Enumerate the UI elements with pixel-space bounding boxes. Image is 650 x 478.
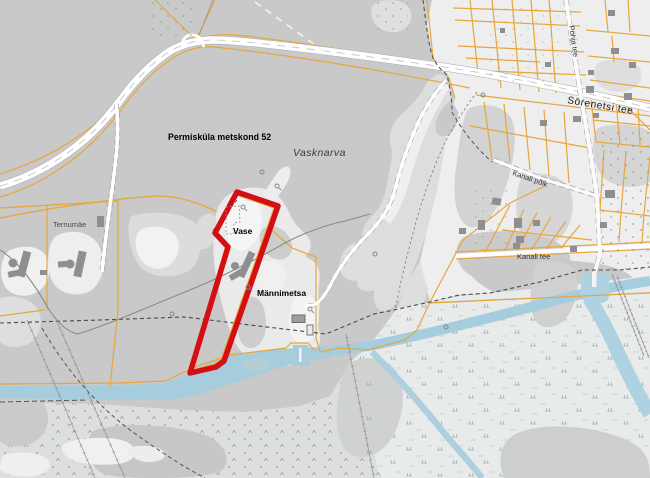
svg-text:Ternumäe: Ternumäe (53, 220, 86, 229)
svg-text:Vase: Vase (233, 226, 253, 236)
svg-text:Männimetsa: Männimetsa (257, 288, 306, 298)
svg-text:Kanali tee: Kanali tee (517, 252, 550, 261)
svg-text:Vasknarva: Vasknarva (293, 147, 346, 159)
svg-text:Permisküla metskond 52: Permisküla metskond 52 (168, 132, 271, 142)
